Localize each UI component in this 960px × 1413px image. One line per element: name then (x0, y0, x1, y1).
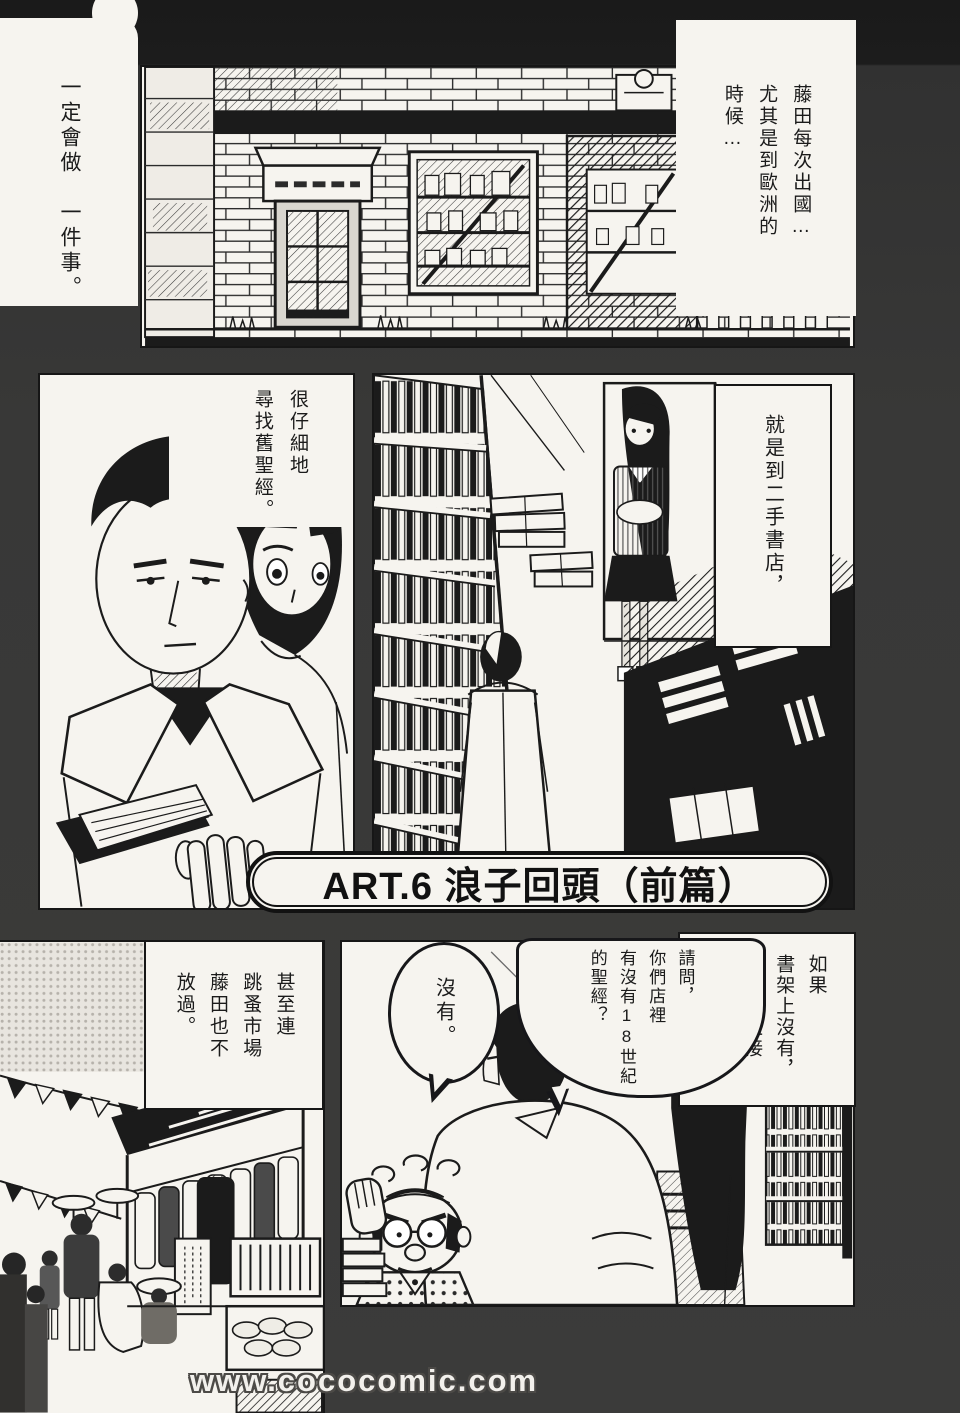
caption-mid-right-text: 就是到二手書店， (759, 386, 788, 646)
watermark: www.cococomic.com (190, 1363, 538, 1399)
caption-top-left-text: 一定會做 一件事。 (54, 18, 84, 306)
manga-page: 一定會做 一件事。 藤田每次出國… 尤其是到歐洲的 時候… 很仔細地 尋找舊聖經… (0, 0, 960, 1413)
caption-top-right: 藤田每次出國… 尤其是到歐洲的 時候… (676, 20, 856, 316)
caption-mid-right: 就是到二手書店， (714, 384, 832, 648)
watermark-text: www.cococomic.com (190, 1363, 538, 1398)
caption-bottom-left: 甚至連 跳蚤市場 藤田也不 放過。 (144, 940, 324, 1110)
speech-bubble-question-text: 請問， 你們店裡 有沒有18世紀 的聖經？ (583, 941, 700, 1095)
caption-mid-left: 很仔細地 尋找舊聖經。 (169, 375, 353, 527)
speech-tail-question-fill (552, 1085, 570, 1106)
speech-bubble-answer-text: 沒有。 (430, 977, 459, 1049)
caption-bottom-left-text: 甚至連 跳蚤市場 藤田也不 放過。 (168, 942, 301, 1108)
speech-bubble-answer: 沒有。 (388, 942, 500, 1084)
caption-top-right-text: 藤田每次出國… 尤其是到歐洲的 時候… (715, 20, 818, 316)
title-banner-text: ART.6 浪子回頭（前篇） (322, 855, 756, 910)
caption-mid-left-text: 很仔細地 尋找舊聖經。 (245, 375, 353, 521)
caption-top-left: 一定會做 一件事。 (0, 18, 138, 306)
title-banner: ART.6 浪子回頭（前篇） (246, 851, 833, 913)
